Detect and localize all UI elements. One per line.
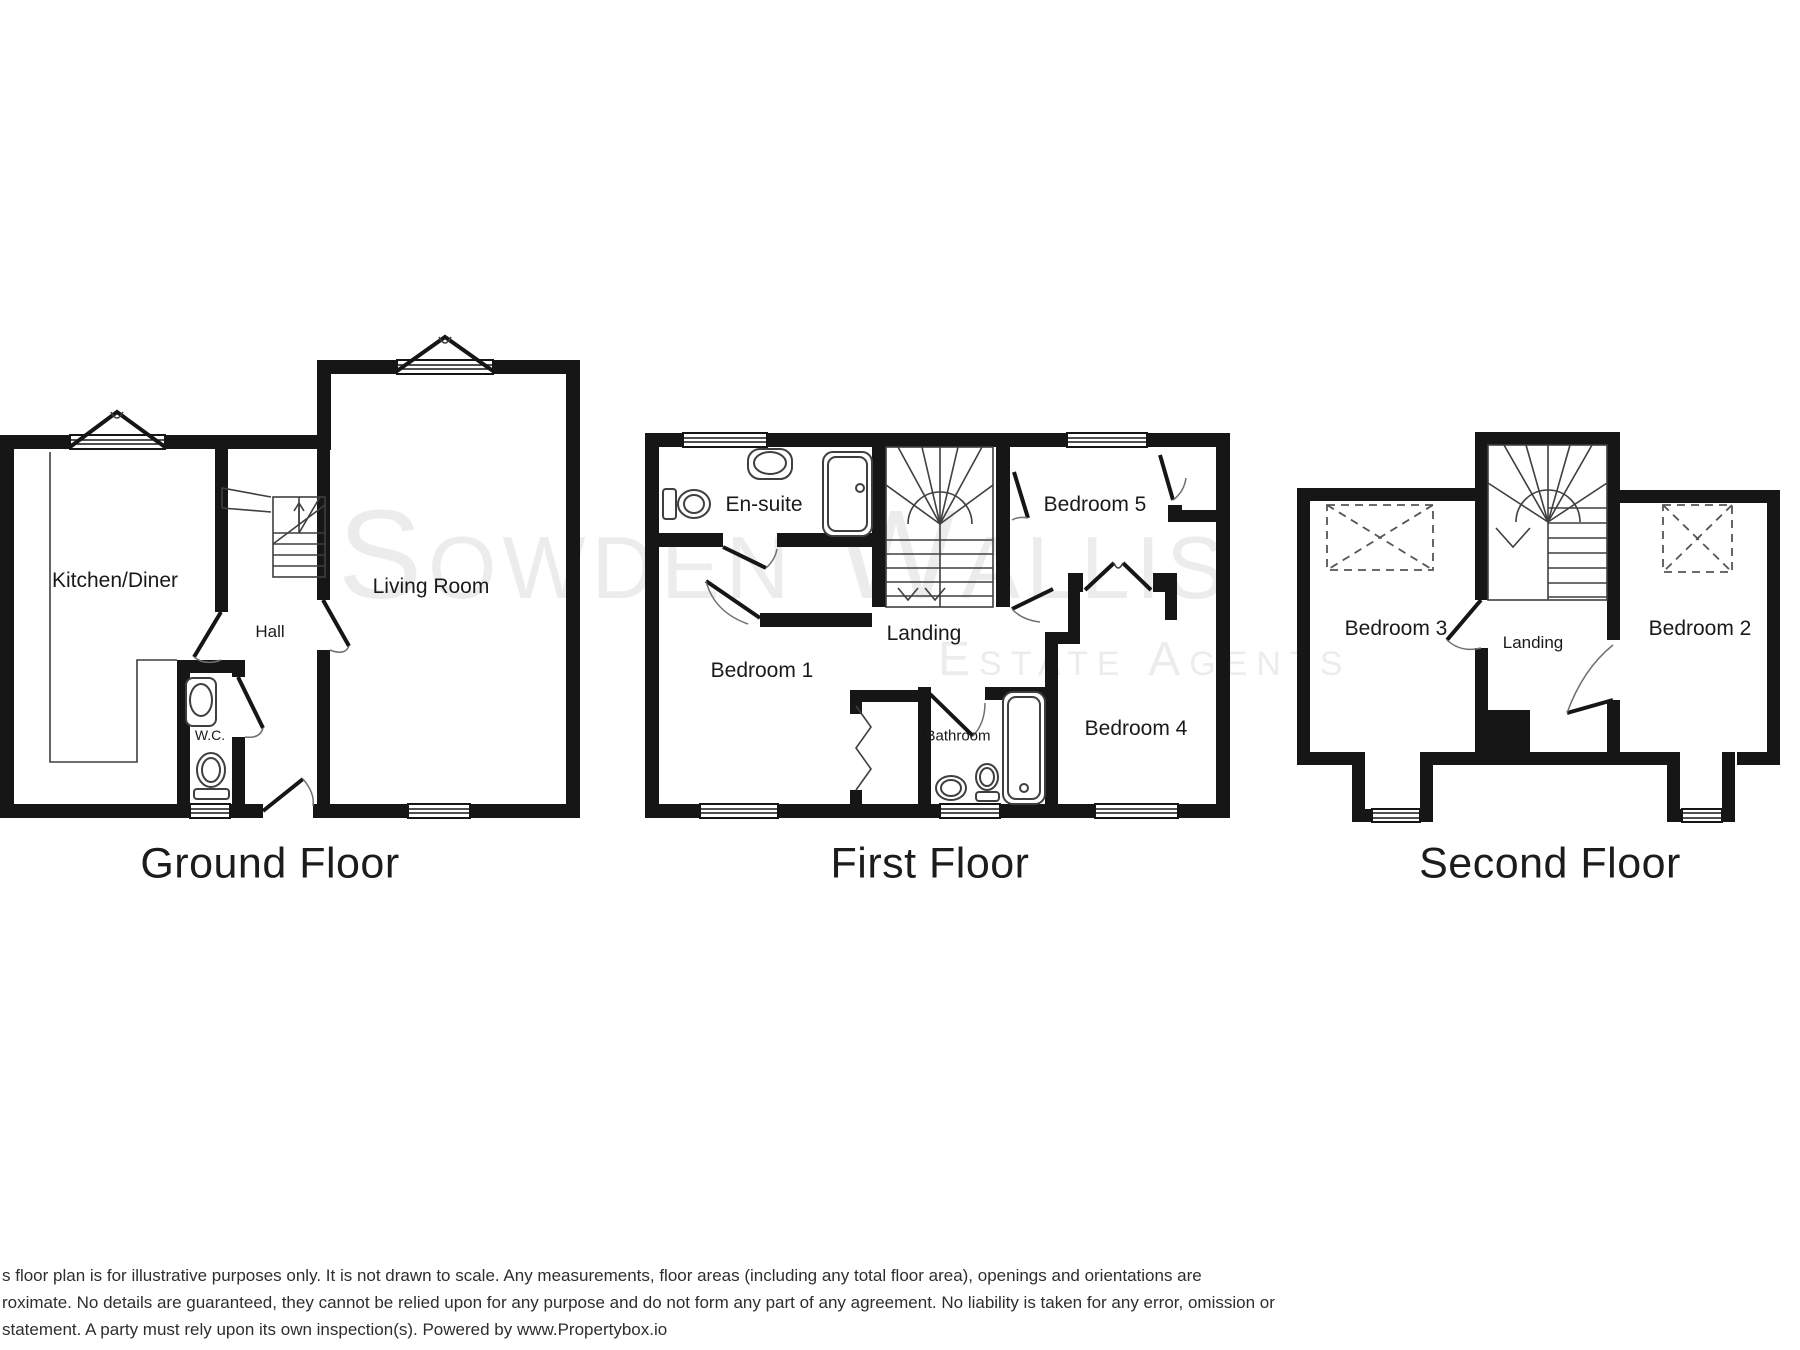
door-swing-icon [1160,455,1186,500]
door-swing-icon [1447,600,1481,649]
bath-icon [823,452,872,536]
kitchen-counter [50,452,177,762]
stairs-icon [886,447,993,607]
window-icon [190,804,230,818]
understairs-cupboard [222,488,271,512]
room-label-en-suite: En-suite [725,493,802,517]
window-icon [700,804,778,818]
room-label-kitchen-diner: Kitchen/Diner [52,569,178,593]
disclaimer-line-1: s floor plan is for illustrative purpose… [2,1262,1602,1289]
door-swing-icon [706,581,760,624]
door-swing-icon [1012,589,1053,622]
front-door-swing-icon [263,779,313,811]
room-label-wc: W.C. [195,727,225,743]
disclaimer-line-3: statement. A party must rely upon its ow… [2,1316,1602,1343]
door-swing-icon [1012,472,1028,520]
floorplan-canvas: Sowden Wallis Estate Agents [0,0,1800,1350]
stairs-icon [1488,445,1607,600]
room-label-landing-second: Landing [1503,633,1564,653]
floor-title-first: First Floor [831,840,1030,889]
bath-icon [1003,692,1045,804]
sink-icon [936,776,966,800]
toilet-icon [663,489,710,519]
window-icon [408,804,470,818]
floorplan-drawing [0,0,1800,1350]
room-label-bedroom-4: Bedroom 4 [1085,717,1188,741]
door-swing-icon [238,677,263,737]
room-label-bedroom-3: Bedroom 3 [1345,617,1448,641]
room-label-bedroom-5: Bedroom 5 [1044,493,1147,517]
window-icon [940,804,1000,818]
sink-icon [186,678,216,726]
window-icon [1682,809,1722,822]
double-door-icon [1085,563,1151,590]
room-label-hall: Hall [255,622,284,642]
skylight-icon [1327,505,1433,570]
floor-title-ground: Ground Floor [140,840,399,889]
window-icon [1095,804,1178,818]
window-icon [70,412,165,449]
room-label-bedroom-1: Bedroom 1 [711,659,814,683]
room-label-landing-first: Landing [887,622,962,646]
disclaimer-line-2: roximate. No details are guaranteed, the… [2,1289,1602,1316]
door-swing-icon [1567,645,1613,713]
window-icon [1372,809,1420,822]
sink-icon [748,449,792,479]
floor-title-second: Second Floor [1419,840,1681,889]
window-icon [1067,433,1147,447]
bifold-door-icon [856,706,871,790]
disclaimer: s floor plan is for illustrative purpose… [2,1262,1602,1343]
room-label-bedroom-2: Bedroom 2 [1649,617,1752,641]
door-swing-icon [323,600,349,652]
window-icon [397,337,493,374]
room-label-bathroom: Bathroom [925,728,990,745]
door-swing-icon [194,612,221,662]
toilet-icon [194,753,229,799]
window-icon [683,433,767,447]
door-swing-icon [723,547,777,568]
room-label-living-room: Living Room [373,575,490,599]
toilet-icon [976,764,999,801]
skylight-icon [1663,505,1732,572]
